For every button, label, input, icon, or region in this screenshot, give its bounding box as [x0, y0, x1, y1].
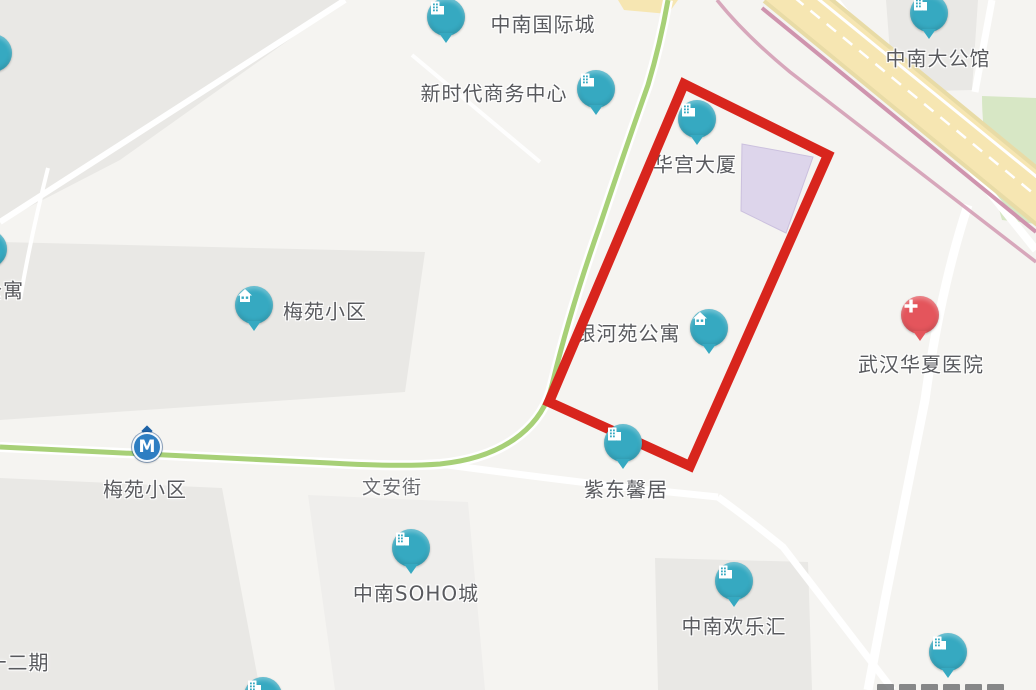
bottom-center-poi-pin[interactable] — [244, 677, 282, 690]
zhongnan-huanlehui-pin[interactable] — [715, 562, 753, 612]
zhongnan-huanlehui-pin-ball — [715, 562, 753, 600]
building-icon — [715, 562, 735, 582]
building-icon — [910, 0, 930, 14]
wuhan-huaxia-hospital-pin[interactable] — [901, 296, 939, 346]
huagong-building-pin-ball — [678, 100, 716, 138]
zhongnan-international-city-pin-ball — [427, 0, 465, 36]
new-era-business-center-pin[interactable] — [577, 70, 615, 120]
left-edge-poi-mid-pin-ball — [0, 230, 7, 268]
huagong-building-pin[interactable] — [678, 100, 716, 150]
zidong-xinju-pin-ball — [604, 424, 642, 462]
building-icon — [427, 0, 447, 18]
new-era-business-center-pin-tail — [589, 105, 603, 115]
new-era-business-center-pin-ball — [577, 70, 615, 108]
zhongnan-soho-city-pin[interactable] — [392, 529, 430, 579]
house-icon — [690, 309, 710, 329]
yinheyuan-apartment-pin-ball — [690, 309, 728, 347]
map-canvas[interactable]: 中南国际城新时代商务中心华宫大厦中南大公馆梅苑小区银河苑公寓紫东馨居中南SOHO… — [0, 0, 1036, 690]
building-icon — [678, 100, 698, 120]
building-icon — [604, 424, 624, 444]
meiyuan-metro-station-pin[interactable]: M — [131, 429, 163, 465]
hospital-cross-icon — [901, 296, 921, 316]
zidong-xinju-pin-tail — [616, 459, 630, 469]
zhongnan-international-city-pin-tail — [439, 33, 453, 43]
bottom-right-poi-pin[interactable] — [929, 633, 967, 683]
meiyuan-metro-station-pin-ball: M — [132, 432, 162, 462]
building-icon — [392, 529, 412, 549]
bottom-right-poi-pin-tail — [941, 668, 955, 678]
zhongnan-soho-city-pin-ball — [392, 529, 430, 567]
meiyuan-xiaoqu-pin-ball — [235, 286, 273, 324]
yinheyuan-apartment-pin[interactable] — [690, 309, 728, 359]
bottom-right-poi-pin-ball — [929, 633, 967, 671]
zhongnan-huanlehui-pin-tail — [727, 597, 741, 607]
meiyuan-xiaoqu-pin[interactable] — [235, 286, 273, 336]
wuhan-huaxia-hospital-pin-ball — [901, 296, 939, 334]
pins-layer: M — [0, 0, 1036, 690]
huagong-building-pin-tail — [690, 135, 704, 145]
zhongnan-grand-mansion-pin-ball — [910, 0, 948, 32]
metro-icon: M — [139, 439, 156, 456]
yinheyuan-apartment-pin-tail — [702, 344, 716, 354]
zhongnan-grand-mansion-pin-tail — [922, 29, 936, 39]
bottom-center-poi-pin-ball — [244, 677, 282, 690]
building-icon — [577, 70, 597, 90]
meiyuan-xiaoqu-pin-tail — [247, 321, 261, 331]
left-edge-poi-top-pin-ball — [0, 34, 12, 72]
building-icon — [929, 633, 949, 653]
wuhan-huaxia-hospital-pin-tail — [913, 331, 927, 341]
house-icon — [235, 286, 255, 306]
zidong-xinju-pin[interactable] — [604, 424, 642, 474]
left-edge-poi-mid-pin[interactable] — [0, 230, 7, 280]
building-icon — [244, 677, 264, 690]
zhongnan-grand-mansion-pin[interactable] — [910, 0, 948, 44]
left-edge-poi-top-pin[interactable] — [0, 34, 12, 84]
zhongnan-international-city-pin[interactable] — [427, 0, 465, 48]
zhongnan-soho-city-pin-tail — [404, 564, 418, 574]
